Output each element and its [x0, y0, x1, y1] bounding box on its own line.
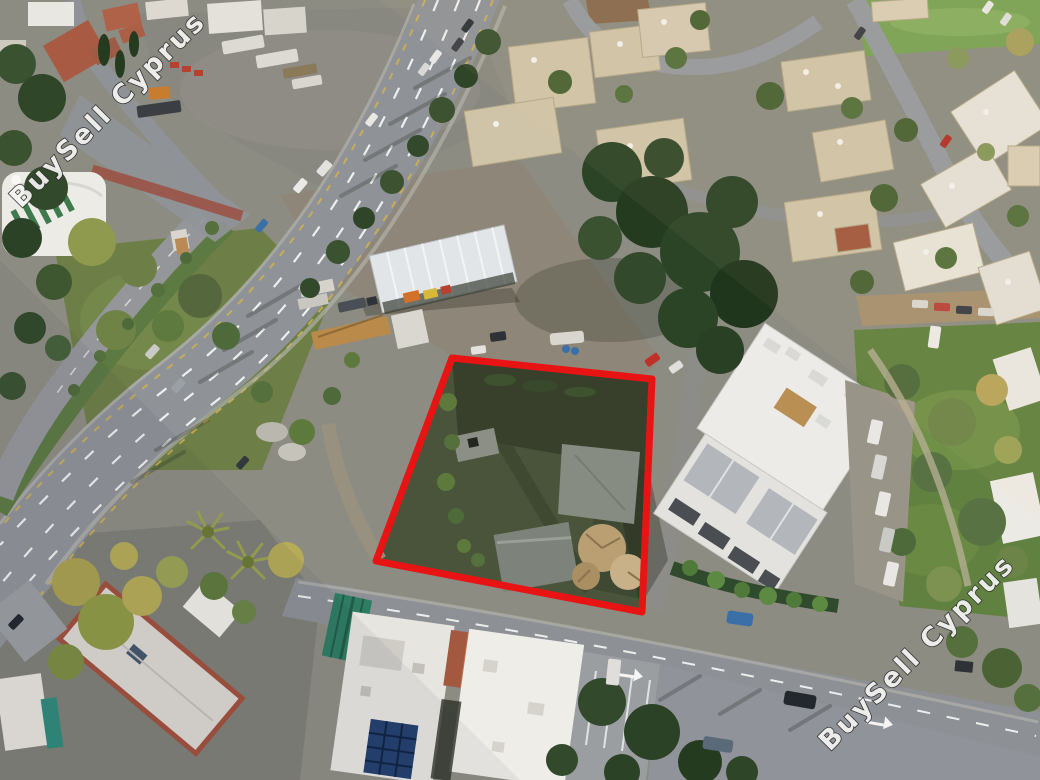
car: [606, 658, 622, 685]
blue-barrel: [562, 345, 570, 353]
machinery: [194, 70, 203, 76]
container-orange: [149, 86, 171, 100]
machinery: [182, 66, 191, 72]
blue-barrel: [571, 347, 579, 355]
dumpster: [954, 660, 973, 673]
aerial-photo: BuySell Cyprus BuySell Cyprus: [0, 0, 1040, 780]
apartment-parking: [845, 380, 915, 602]
